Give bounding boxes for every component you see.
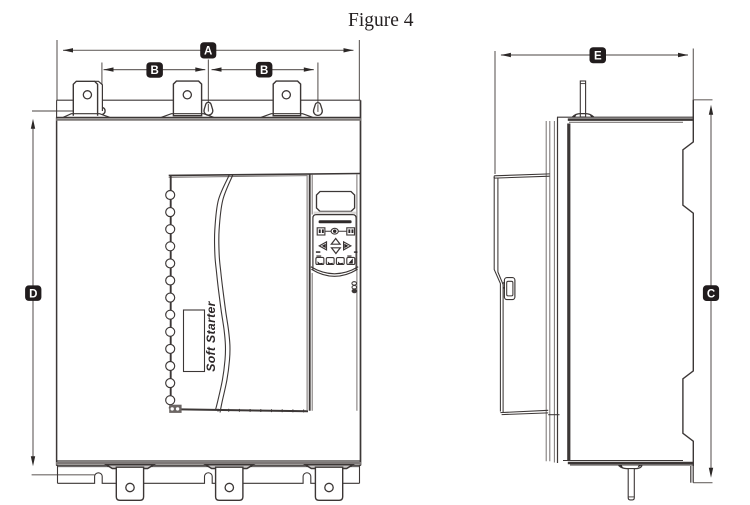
svg-text:Soft Starter: Soft Starter [204,300,218,371]
svg-text:B: B [260,65,268,77]
svg-text:C: C [707,288,715,300]
svg-text:B: B [151,65,159,77]
svg-text:D: D [29,288,37,300]
svg-text:Figure 4: Figure 4 [348,10,414,31]
svg-text:A: A [204,46,212,58]
svg-text:E: E [594,51,602,63]
